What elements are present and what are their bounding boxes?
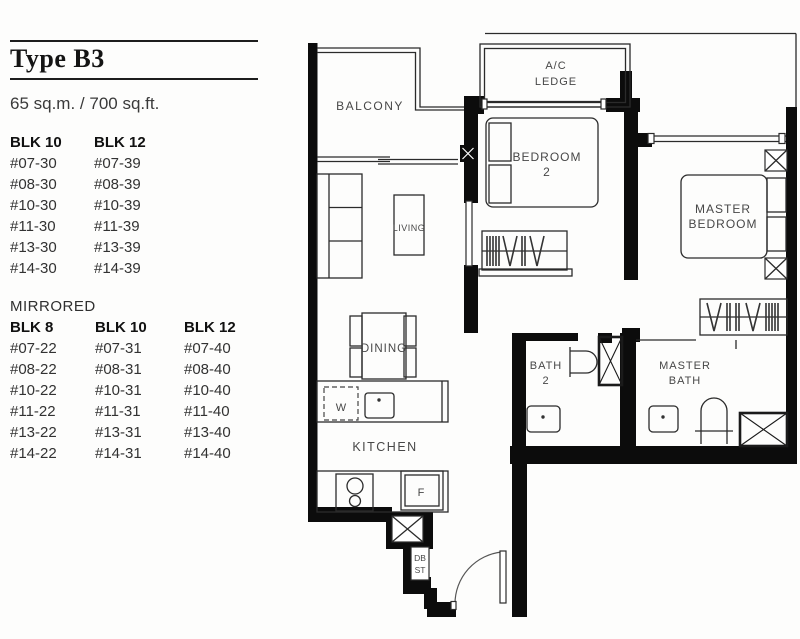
- wardrobe-master: [700, 299, 787, 335]
- master-bath-toilet: [695, 398, 733, 444]
- wardrobe-bedroom2: [479, 231, 572, 276]
- label-bedroom2-1: BEDROOM: [512, 150, 581, 164]
- service-shaft: [392, 516, 423, 542]
- wall-box-master-bottom: [765, 258, 787, 279]
- wall-box-living: [460, 145, 476, 162]
- window-bedroom2: [482, 99, 606, 109]
- wall-box-master-top: [765, 150, 787, 171]
- label-master-bedroom-2: BEDROOM: [688, 217, 757, 231]
- bath2-sink: [527, 406, 560, 432]
- entrance-door: [451, 551, 506, 610]
- floorplan-svg: BALCONY A/C LEDGE BEDROOM 2 MASTER BEDRO…: [0, 0, 800, 639]
- bath2-toilet: [570, 347, 597, 377]
- kitchen-sink: [365, 393, 394, 418]
- label-master-bedroom-1: MASTER: [695, 202, 751, 216]
- label-ac-ledge-1: A/C: [545, 60, 566, 72]
- label-kitchen: KITCHEN: [352, 440, 417, 454]
- room-ac-ledge: [480, 34, 796, 108]
- label-bath2-2: 2: [542, 375, 549, 387]
- label-bedroom2-2: 2: [543, 165, 551, 179]
- master-bath-fixtures: [636, 340, 787, 446]
- sofa: [317, 174, 362, 278]
- label-db: DB: [414, 553, 426, 563]
- stove: [336, 474, 373, 511]
- label-st: ST: [415, 565, 426, 575]
- label-living: LIVING: [393, 223, 426, 233]
- label-ac-ledge-2: LEDGE: [535, 76, 577, 88]
- bath2-fixtures: [527, 337, 622, 432]
- sliding-door-bedroom2: [466, 201, 472, 266]
- window-master-bedroom: [648, 134, 786, 144]
- label-balcony: BALCONY: [336, 99, 404, 113]
- label-master-bath-2: BATH: [669, 375, 702, 387]
- master-bath-shaft: [740, 413, 787, 446]
- label-fridge: F: [418, 487, 425, 499]
- label-master-bath-1: MASTER: [659, 360, 711, 372]
- db-st-cabinet: [411, 547, 429, 580]
- label-dining: DINING: [361, 343, 407, 355]
- master-bath-sink: [649, 406, 678, 432]
- label-washer: W: [336, 402, 347, 414]
- kitchen-sink-tap: [377, 398, 380, 401]
- walls: [308, 43, 797, 617]
- room-labels: BALCONY A/C LEDGE BEDROOM 2 MASTER BEDRO…: [336, 60, 758, 575]
- label-bath2-1: BATH: [530, 360, 563, 372]
- bath2-shower: [599, 337, 622, 385]
- kitchen-counter-bottom: [317, 471, 448, 512]
